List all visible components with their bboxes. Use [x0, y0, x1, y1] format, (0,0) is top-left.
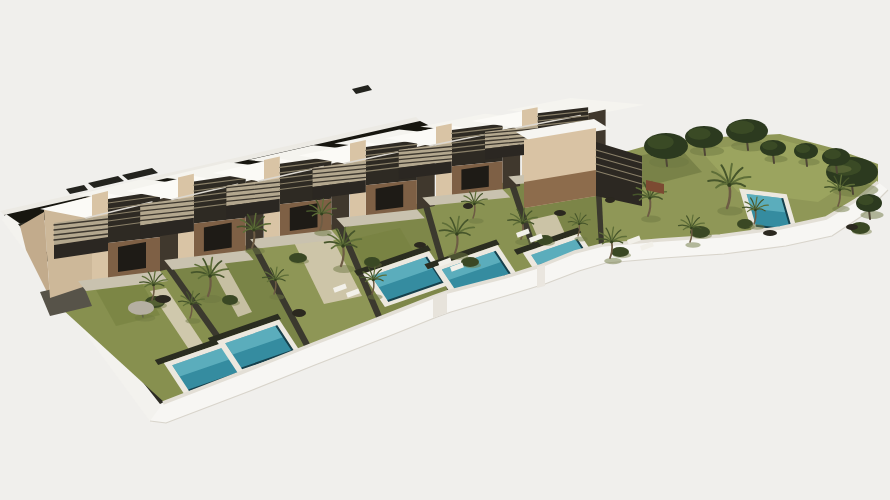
roof-vent — [352, 85, 372, 94]
garden-furniture — [846, 224, 858, 230]
patio-umbrella — [128, 301, 154, 315]
bush — [289, 253, 307, 263]
palm-shadow — [185, 318, 200, 324]
garden-furniture — [463, 203, 473, 209]
palm-crown — [610, 241, 613, 244]
garden-furniture — [554, 210, 566, 216]
garden-furniture — [292, 309, 306, 317]
house-window — [204, 223, 232, 252]
palm-crown — [252, 228, 255, 231]
tree-shadow — [764, 155, 787, 162]
palm-crown — [473, 203, 476, 206]
garden-furniture — [414, 242, 426, 248]
palm-shadow — [641, 215, 661, 222]
palm-crown — [838, 189, 841, 192]
umbrella-shadow — [135, 315, 156, 322]
house-window — [118, 242, 146, 272]
house-window — [290, 203, 318, 231]
palm-crown — [578, 223, 580, 225]
bush — [364, 257, 380, 267]
garden-furniture — [155, 295, 171, 303]
aerial-render-svg — [0, 0, 890, 500]
palm-crown — [274, 279, 277, 282]
palm-crown — [648, 196, 651, 199]
palm-crown — [152, 284, 155, 287]
render-stage — [0, 0, 890, 500]
house-window — [461, 165, 488, 190]
bush — [222, 295, 238, 305]
palm-crown — [754, 209, 757, 212]
palm-crown — [521, 222, 524, 225]
wall-seam — [537, 265, 545, 288]
palm-crown — [341, 244, 345, 248]
palm-shadow — [749, 224, 764, 230]
palm-crown — [190, 303, 193, 306]
palm-crown — [455, 232, 458, 235]
tree-shadow — [860, 211, 883, 219]
palm-shadow — [448, 252, 469, 260]
palm-shadow — [367, 294, 382, 300]
palm-shadow — [832, 206, 850, 212]
tree-canopy-highlight — [824, 149, 841, 159]
palm-shadow — [604, 258, 622, 264]
garden-furniture — [763, 230, 777, 236]
tree-canopy-highlight — [858, 195, 874, 205]
garden-furniture — [605, 197, 615, 203]
palm-crown — [727, 183, 731, 187]
palm-shadow — [333, 265, 355, 273]
house-window — [376, 184, 404, 210]
palm-crown — [320, 213, 323, 216]
palm-shadow — [717, 206, 742, 215]
palm-shadow — [269, 294, 284, 300]
palm-shadow — [574, 237, 587, 242]
tree-canopy-highlight — [762, 141, 778, 150]
bush — [611, 247, 629, 257]
tree-canopy-highlight — [688, 128, 711, 140]
tree-canopy-highlight — [729, 121, 754, 134]
tree-shadow — [826, 165, 851, 173]
palm-shadow — [685, 242, 700, 248]
palm-crown — [372, 279, 375, 282]
tree-canopy-highlight — [796, 144, 810, 153]
tree-shadow — [798, 158, 820, 165]
tree-canopy-highlight — [647, 135, 673, 149]
palm-crown — [208, 274, 212, 278]
palm-crown — [690, 227, 693, 230]
palm-shadow — [245, 247, 265, 254]
palm-shadow — [468, 218, 483, 224]
